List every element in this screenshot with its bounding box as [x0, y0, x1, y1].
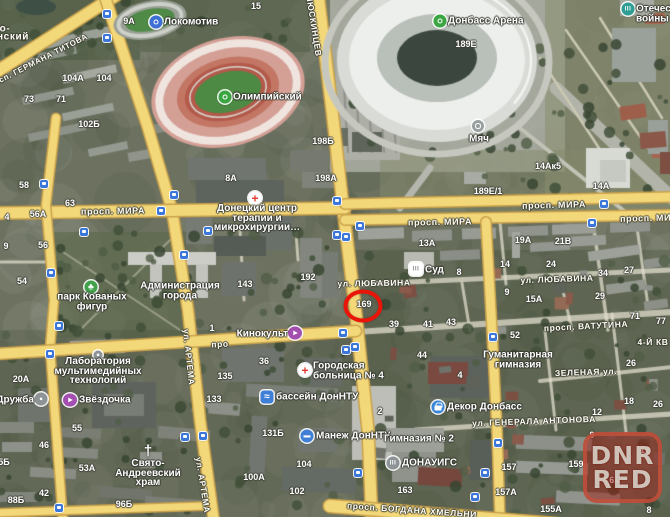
house-number-label: 88Б — [8, 495, 24, 505]
house-number-label: 43 — [446, 317, 456, 327]
transit-stop-icon[interactable] — [170, 191, 178, 199]
poi-label-bassein-donntu[interactable]: бассейн ДонНТУ — [276, 392, 358, 402]
transit-stop-icon[interactable] — [339, 329, 347, 337]
poi-label-donetsk-center-terapii-mikrohirurgii[interactable]: Донецкий центр терапии и микрохирургии… — [214, 204, 300, 233]
house-number-label: 155А — [540, 504, 562, 514]
transit-stop-icon[interactable] — [40, 180, 48, 188]
house-number-label: 36 — [259, 356, 269, 366]
house-number-label: 15А — [526, 294, 543, 304]
transit-stop-icon[interactable] — [342, 233, 350, 241]
house-number-label: 102Б — [78, 119, 100, 129]
street-label: ул. АРТЕМА — [181, 328, 197, 385]
poi-label-druzhba[interactable]: Дружба — [0, 395, 34, 405]
transit-stop-icon[interactable] — [103, 10, 111, 18]
house-number-label: 8 — [456, 267, 461, 277]
transit-stop-icon[interactable] — [351, 343, 359, 351]
street-label: просп. МИРА — [81, 205, 145, 216]
house-number-label: 96Б — [116, 499, 132, 509]
transit-stop-icon[interactable] — [489, 333, 497, 341]
house-number-label: 53А — [79, 463, 96, 473]
transit-stop-icon[interactable] — [46, 350, 54, 358]
street-label: ул. АРТЕМА — [194, 456, 213, 513]
house-number-label: 131Б — [262, 428, 284, 438]
red-circle-annotation — [344, 290, 383, 323]
house-number-label: 14А — [593, 181, 610, 191]
house-number-label: 24 — [546, 259, 556, 269]
house-number-label: 14Ак5 — [535, 161, 561, 171]
house-number-label: 9А — [123, 16, 135, 26]
house-number-label: 9 — [3, 241, 8, 251]
transit-stop-icon[interactable] — [180, 251, 188, 259]
street-label: ул. ЛЮБАВИНА — [520, 273, 593, 286]
poi-label-gorodskaya-bolnitsa-4[interactable]: Городская больница № 4 — [313, 362, 384, 381]
house-number-label: 1 — [209, 323, 214, 333]
house-number-label: 104 — [296, 459, 311, 469]
druzhba-icon[interactable]: ● — [35, 393, 48, 406]
house-number-label: 34 — [598, 268, 608, 278]
poi-label-manezh-donntu[interactable]: Манеж ДонНТУ — [316, 431, 390, 441]
street-label: просп. МИРА — [522, 199, 586, 211]
house-number-label: 21В — [555, 236, 572, 246]
transit-stop-icon[interactable] — [80, 228, 88, 236]
street-label: нский — [0, 32, 29, 43]
poi-label-sud[interactable]: Суд — [425, 265, 444, 275]
house-number-label: 39 — [389, 319, 399, 329]
house-number-label: 192 — [300, 272, 315, 282]
street-label: ул. ГЕНЕРАЛА АНТОНОВА — [472, 414, 596, 428]
transit-stop-icon[interactable] — [588, 219, 596, 227]
house-number-label: 56 — [38, 240, 48, 250]
transit-stop-icon[interactable] — [356, 222, 364, 230]
house-number-label: 26 — [626, 358, 636, 368]
street-label: 4-Й КВ — [638, 337, 669, 347]
house-number-label: 189Е — [455, 39, 476, 49]
house-number-label: 44 — [417, 350, 427, 360]
transit-stop-icon[interactable] — [342, 346, 350, 354]
street-label: просп. МИРА — [408, 216, 472, 227]
house-number-label: 71 — [56, 94, 66, 104]
house-number-label: 46 — [39, 440, 49, 450]
poi-label-donauigs[interactable]: ДОНАУИГС — [402, 458, 457, 468]
house-number-label: 52 — [510, 330, 520, 340]
house-number-label: 73 — [24, 94, 34, 104]
poi-label-gimnaziya-2[interactable]: Гимназия № 2 — [384, 434, 454, 444]
house-number-label: 20А — [13, 374, 30, 384]
house-number-label: 26 — [653, 399, 663, 409]
house-number-label: 4 — [457, 370, 462, 380]
transit-stop-icon[interactable] — [199, 432, 207, 440]
house-number-label: 198Б — [312, 136, 334, 146]
house-number-label: 8 — [646, 505, 651, 515]
poi-label-donbass-arena[interactable]: Донбасс Арена — [448, 16, 524, 26]
poi-label-kinokult[interactable]: Кинокульт — [237, 329, 288, 339]
house-number-label: 54 — [17, 276, 27, 286]
poi-label-laboratoriya-multimedia[interactable]: Лаборатория мультимедийных технологий — [54, 357, 141, 386]
myach-monument-icon[interactable] — [472, 120, 484, 132]
donbass-arena-icon[interactable] — [434, 15, 447, 28]
transit-stop-icon[interactable] — [157, 207, 165, 215]
house-number-label: 104 — [96, 73, 111, 83]
transit-stop-icon[interactable] — [204, 227, 212, 235]
transit-stop-icon[interactable] — [103, 34, 111, 42]
house-number-label: 2 — [377, 406, 382, 416]
street-label: ЗЕЛЕНАЯ ул. — [555, 366, 618, 378]
house-number-label: 29 — [595, 291, 605, 301]
map-labels-overlay: просп. ГЕРМАНА ТИТОВАЛЮСКИНЦЕВпросп. МИР… — [0, 0, 670, 517]
transit-stop-icon[interactable] — [55, 322, 63, 330]
transit-stop-icon[interactable] — [333, 197, 341, 205]
dekor-donbass-icon[interactable] — [432, 401, 445, 414]
transit-stop-icon[interactable] — [600, 200, 608, 208]
house-number-label: 5Б — [0, 457, 10, 467]
poi-label-museum-otechestvennoy-voyny[interactable]: Отечественной войны — [636, 5, 670, 24]
house-number-label: 13А — [419, 238, 436, 248]
kinokult-icon[interactable]: ▶ — [288, 327, 302, 340]
bassein-donntu-icon[interactable]: ≈ — [261, 391, 274, 404]
street-label: просп. ВАТУТИНА — [544, 319, 629, 333]
house-number-label: 198А — [315, 173, 337, 183]
house-number-label: 102 — [289, 486, 304, 496]
transit-stop-icon[interactable] — [55, 504, 63, 512]
poi-label-myach-monument[interactable]: Мяч — [469, 134, 489, 144]
zvezdochka-icon[interactable]: ▶ — [63, 394, 77, 407]
house-number-label: 15 — [251, 1, 261, 11]
house-number-label: 27 — [624, 265, 634, 275]
poi-label-olimpiysky-stadium[interactable]: Олимпийский — [233, 92, 302, 102]
transit-stop-icon[interactable] — [494, 439, 502, 447]
transit-stop-icon[interactable] — [333, 231, 341, 239]
house-number-label: 135 — [217, 371, 232, 381]
street-label: ЛЮСКИНЦЕВ — [304, 0, 324, 57]
satellite-map-view[interactable]: просп. ГЕРМАНА ТИТОВАЛЮСКИНЦЕВпросп. МИР… — [0, 0, 670, 517]
transit-stop-icon[interactable] — [354, 469, 362, 477]
street-label: просп. МИРА — [620, 212, 670, 224]
house-number-label: 12 — [592, 407, 602, 417]
house-number-label: 157А — [495, 487, 517, 497]
poi-label-dekor-donbass[interactable]: Декор Донбасс — [447, 402, 522, 412]
manezh-donntu-icon[interactable]: ▬ — [301, 430, 314, 443]
transit-stop-icon[interactable] — [47, 269, 55, 277]
poi-label-gumanitarnaya-gimnaziya[interactable]: Гуманитарная гимназия — [483, 351, 553, 370]
house-number-label: 163 — [397, 485, 412, 495]
watermark-text: RED — [592, 468, 652, 492]
house-number-label: 63 — [65, 198, 75, 208]
street-label: просп. БОГДАНА ХМЕЛЬНИ — [347, 500, 477, 517]
house-number-label: 189Е/1 — [474, 186, 503, 196]
poi-label-park-kovanyh-figur[interactable]: парк Кованых фигур — [57, 293, 126, 312]
house-number-label: 9 — [504, 287, 509, 297]
house-number-label: 159 — [568, 459, 583, 469]
house-number-label: 8А — [225, 173, 237, 183]
poi-label-zvezdochka[interactable]: Звёздочка — [79, 395, 131, 405]
museum-otechestvennoy-voyny-icon[interactable]: III — [622, 3, 635, 16]
dnr-red-watermark: DNRRED — [583, 432, 662, 503]
house-number-label: 4 — [4, 212, 9, 222]
house-number-label: 77 — [656, 316, 666, 326]
street-label: ул. ЛЮБАВИНА — [337, 277, 410, 288]
lokomotiv-stadium-icon[interactable] — [150, 16, 163, 29]
house-number-label: 143 — [237, 279, 252, 289]
transit-stop-icon[interactable] — [471, 493, 479, 501]
house-number-label: 56А — [30, 209, 47, 219]
house-number-label: 58 — [19, 180, 29, 190]
watermark-text: DNR — [591, 444, 655, 468]
sud-icon[interactable]: III — [410, 263, 423, 276]
transit-stop-icon[interactable] — [181, 433, 189, 441]
donauigs-icon[interactable]: III — [387, 457, 400, 470]
house-number-label: 14 — [500, 259, 510, 269]
transit-stop-icon[interactable] — [481, 469, 489, 477]
poi-label-svyato-andreevsky-hram[interactable]: Свято- Андреевский храм — [115, 459, 181, 488]
gorodskaya-bolnitsa-4-icon[interactable]: + — [299, 364, 312, 377]
house-number-label: 157 — [501, 462, 516, 472]
house-number-label: 19А — [515, 235, 532, 245]
poi-label-administratsiya-goroda[interactable]: Администрация города — [140, 282, 220, 301]
svyato-andreevsky-hram-icon[interactable]: † — [142, 445, 155, 458]
house-number-label: 41 — [423, 319, 433, 329]
house-number-label: 71 — [630, 311, 640, 321]
poi-label-lokomotiv-stadium[interactable]: Локомотив — [164, 17, 218, 27]
house-number-label: 100А — [243, 472, 265, 482]
house-number-label: 55 — [72, 423, 82, 433]
olimpiysky-stadium-icon[interactable] — [219, 91, 232, 104]
house-number-label: 133 — [206, 394, 221, 404]
house-number-label: 104А — [62, 73, 84, 83]
street-label: про — [211, 339, 229, 350]
house-number-label: 18 — [624, 396, 634, 406]
house-number-label: 42 — [39, 488, 49, 498]
